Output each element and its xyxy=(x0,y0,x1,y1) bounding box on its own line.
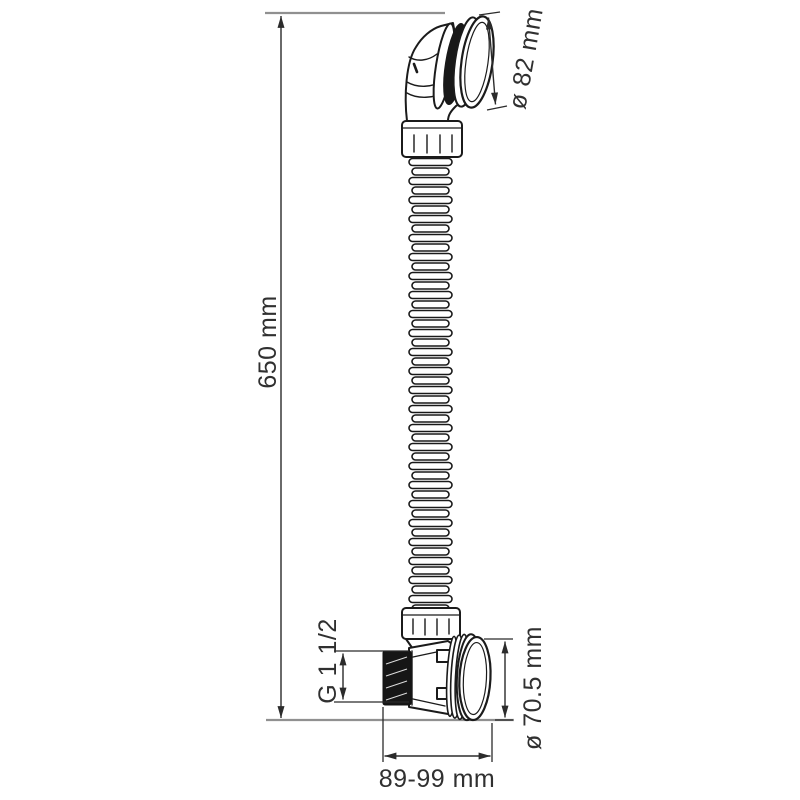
compression-nut-top xyxy=(402,121,462,157)
overflow-cap xyxy=(445,633,493,721)
top-elbow-assembly xyxy=(402,14,499,157)
dimension-overall-height: 650 mm xyxy=(254,16,282,718)
dim-label-overall-height: 650 mm xyxy=(254,295,282,388)
bottom-tee-assembly xyxy=(383,608,493,721)
technical-drawing-canvas: 650 mm xyxy=(0,0,800,800)
threaded-pipe-section xyxy=(383,651,411,705)
dim-label-thread-size: G 1 1/2 xyxy=(314,618,342,704)
drain-technical-drawing: 650 mm xyxy=(0,0,800,800)
dimension-overflow-diameter: ø 70.5 mm xyxy=(484,626,547,750)
dim-label-cap-diameter: ø 82 mm xyxy=(503,6,548,111)
dim-label-overflow-diameter: ø 70.5 mm xyxy=(519,626,547,750)
corrugated-hose xyxy=(408,157,453,607)
external-thread xyxy=(383,651,411,705)
dim-label-adjustable-span: 89-99 mm xyxy=(379,765,496,793)
compression-nut-bottom xyxy=(402,608,460,639)
